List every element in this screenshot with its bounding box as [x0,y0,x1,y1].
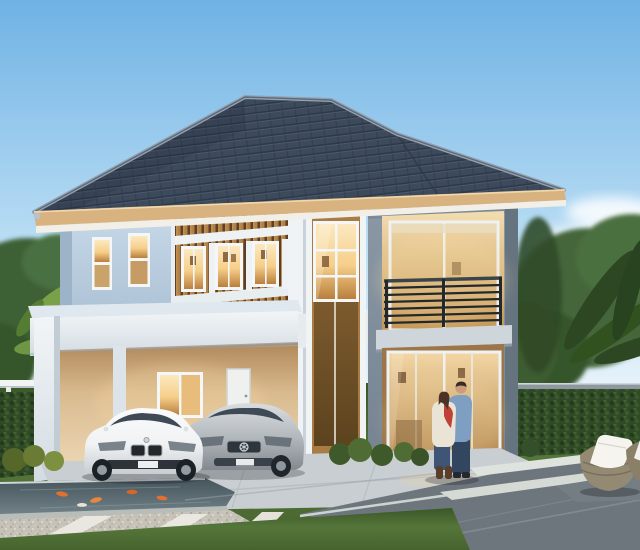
white-car-mirror-left [104,427,109,432]
slat-windows [181,239,288,293]
bmw-roundel [144,437,149,442]
woman-boot-right [445,466,452,479]
white-car-mirror-right [184,427,189,432]
scene-canvas: Modern two-storey house — exterior 3D re… [0,0,640,550]
door-knob [245,395,248,398]
man-jeans [452,438,470,474]
left-wall-window-1 [92,237,112,290]
white-car-plate [138,461,158,468]
bmw-kidney-grille-right [148,445,162,456]
slat-window-2 [215,243,243,290]
blind-box [392,224,496,233]
slat-window-1 [181,246,206,292]
silver-car-plate [236,459,254,466]
ball-bush [521,439,539,457]
column-window [313,221,359,302]
gutter-end [34,213,41,220]
woman-boot-left [436,466,443,479]
bmw-kidney-grille-left [131,445,145,456]
house-rendering-image: Modern two-storey house — exterior 3D re… [0,0,640,550]
left-wall-window-2 [128,233,150,287]
slat-window-3 [252,241,279,287]
glazed-column [306,196,366,474]
